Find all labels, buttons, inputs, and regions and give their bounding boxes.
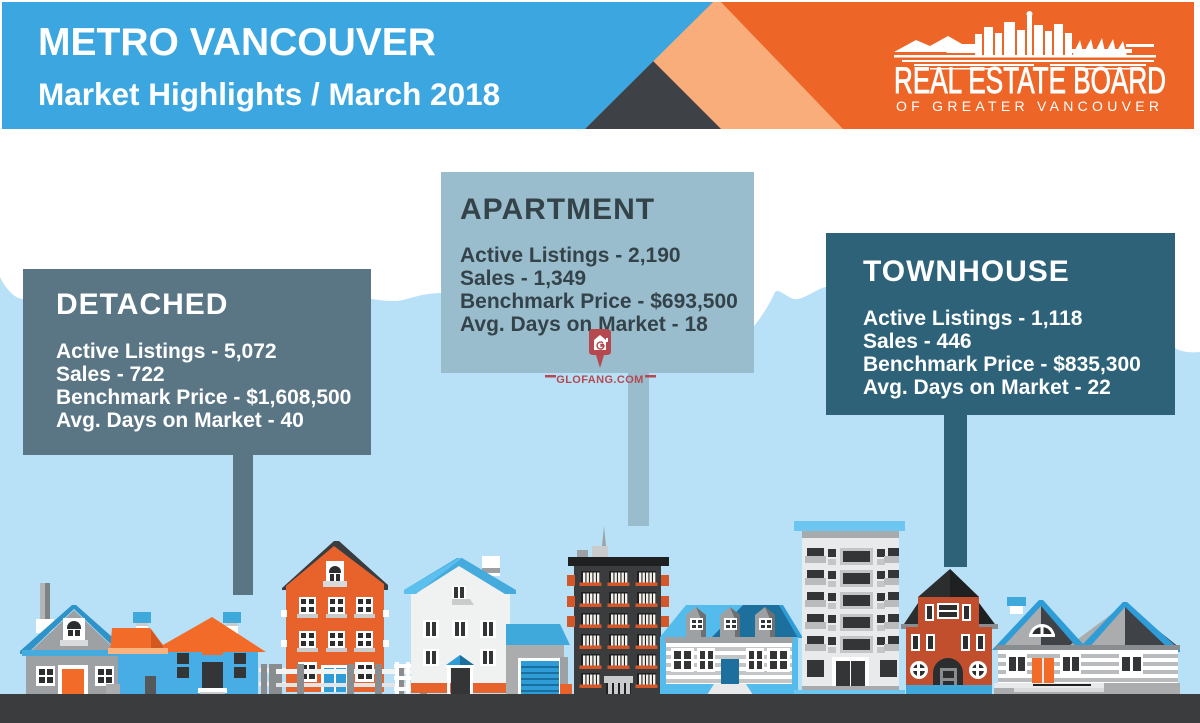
- svg-text:Avg. Days on Market - 18: Avg. Days on Market - 18: [460, 313, 708, 336]
- svg-text:Avg. Days on Market - 22: Avg. Days on Market - 22: [863, 376, 1111, 399]
- svg-text:REAL ESTATE BOARD: REAL ESTATE BOARD: [894, 60, 1166, 101]
- svg-text:OF GREATER VANCOUVER: OF GREATER VANCOUVER: [896, 98, 1164, 114]
- svg-text:Active Listings - 1,118: Active Listings - 1,118: [863, 307, 1083, 330]
- svg-text:Avg. Days on Market - 40: Avg. Days on Market - 40: [56, 409, 304, 432]
- svg-text:Active Listings - 2,190: Active Listings - 2,190: [460, 244, 681, 267]
- svg-text:Benchmark Price - $693,500: Benchmark Price - $693,500: [460, 290, 738, 313]
- svg-text:Market Highlights / March 2018: Market Highlights / March 2018: [38, 76, 500, 112]
- svg-text:APARTMENT: APARTMENT: [460, 193, 655, 226]
- svg-text:DETACHED: DETACHED: [56, 288, 228, 321]
- svg-text:Sales - 446: Sales - 446: [863, 330, 972, 353]
- svg-text:GLOFANG.COM: GLOFANG.COM: [556, 374, 644, 386]
- svg-text:Benchmark Price - $835,300: Benchmark Price - $835,300: [863, 353, 1141, 376]
- svg-text:Benchmark Price - $1,608,500: Benchmark Price - $1,608,500: [56, 386, 351, 409]
- svg-text:Active Listings - 5,072: Active Listings - 5,072: [56, 340, 277, 363]
- svg-text:METRO VANCOUVER: METRO VANCOUVER: [38, 21, 436, 64]
- svg-text:TOWNHOUSE: TOWNHOUSE: [863, 255, 1070, 288]
- svg-text:Sales - 1,349: Sales - 1,349: [460, 267, 586, 290]
- svg-text:Sales - 722: Sales - 722: [56, 363, 165, 386]
